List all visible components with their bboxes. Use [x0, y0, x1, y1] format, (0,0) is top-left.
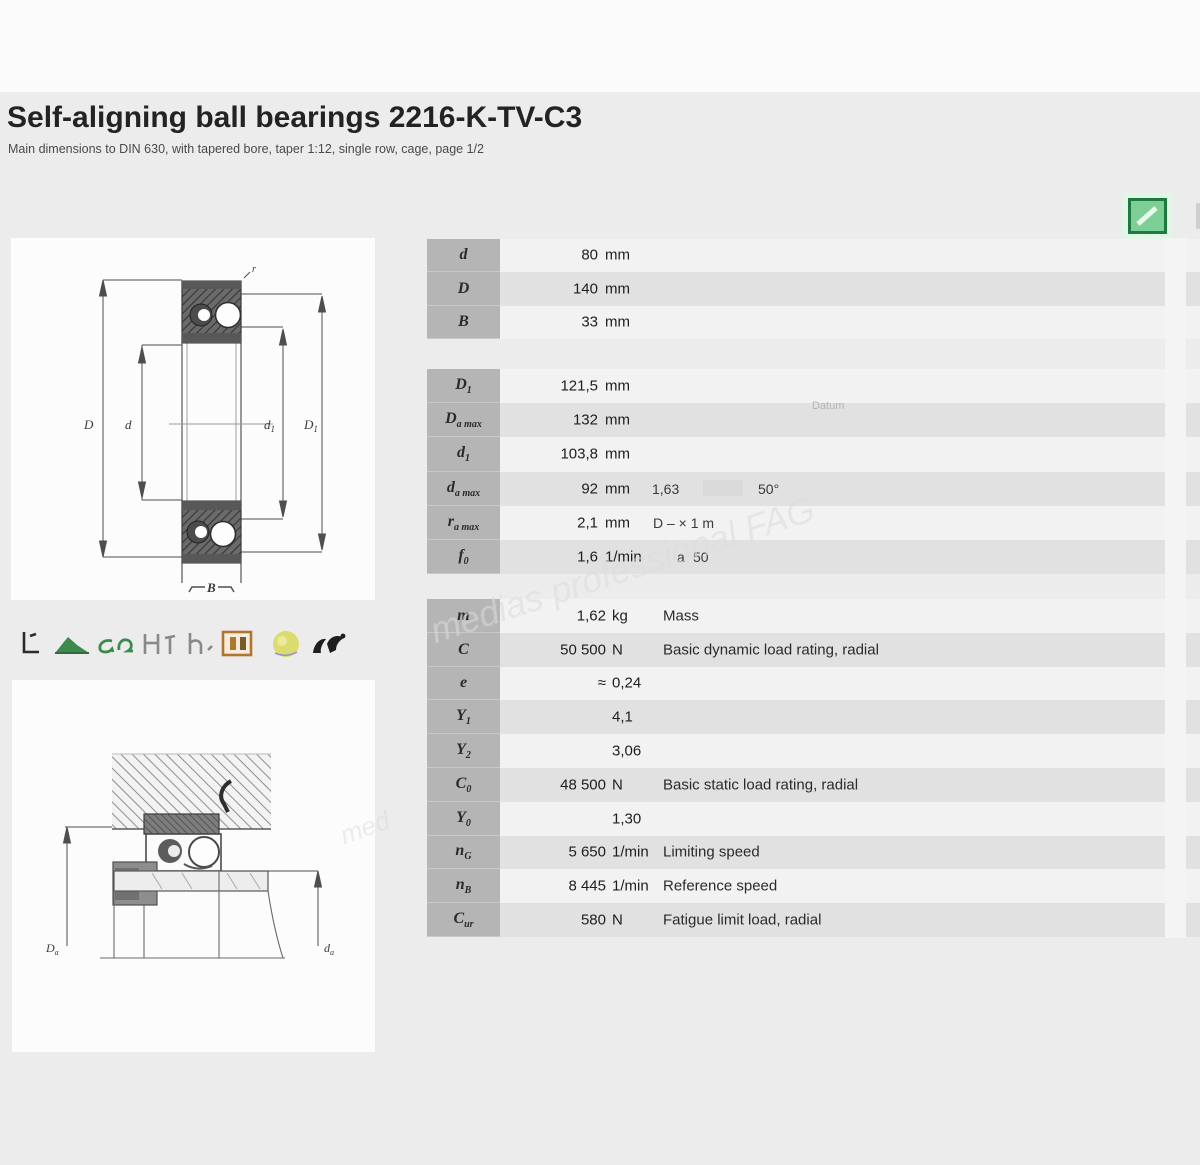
svg-text:d1: d1: [264, 417, 275, 434]
svg-text:D1: D1: [303, 417, 318, 434]
svg-text:B: B: [206, 580, 216, 595]
svg-text:da: da: [324, 941, 334, 957]
svg-text:d: d: [125, 417, 132, 432]
svg-text:D: D: [83, 417, 94, 432]
svg-text:r: r: [252, 264, 256, 275]
svg-text:Da: Da: [45, 941, 59, 957]
